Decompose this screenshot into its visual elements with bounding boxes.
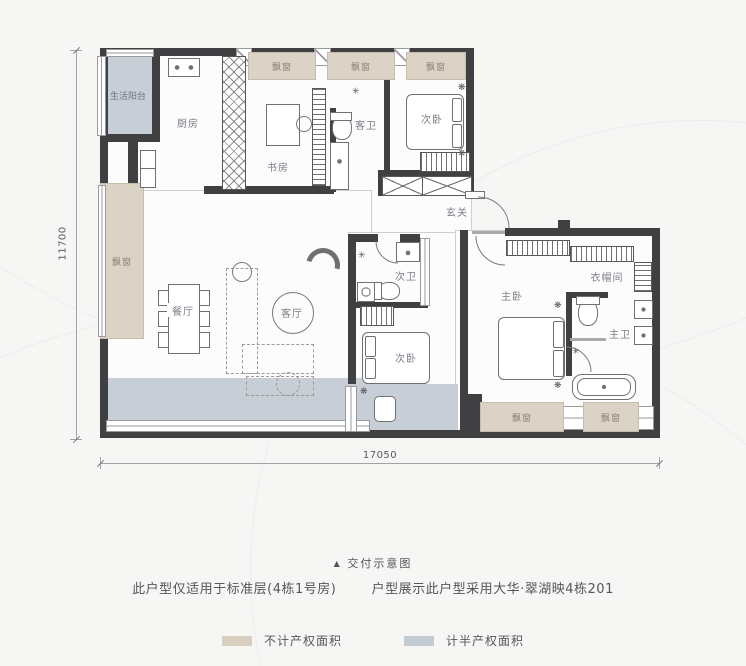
balcony-chair xyxy=(374,396,396,422)
pillow xyxy=(452,124,462,148)
wall xyxy=(246,186,334,194)
kitchen-label: 厨房 xyxy=(160,115,216,129)
study-chair xyxy=(296,116,312,132)
foyer-label: 玄关 xyxy=(441,204,473,218)
living-label: 客厅 xyxy=(276,305,308,319)
wall xyxy=(400,234,420,242)
master-bath-label: 主卫 xyxy=(604,326,636,340)
legend-non-property: 不计产权面积 xyxy=(222,632,342,649)
nightstand-icon: ❋ xyxy=(554,302,562,311)
dining-chair xyxy=(199,332,210,348)
master-wardrobe xyxy=(506,240,570,256)
bedroom-balcony-area xyxy=(356,384,458,430)
bathtub-inner xyxy=(577,378,631,396)
bay-window-label: 飘窗 xyxy=(351,60,371,73)
toilet-tank xyxy=(330,112,352,121)
toilet-tank xyxy=(576,296,600,305)
wall xyxy=(505,228,660,236)
usage-note-left: 此户型仅适用于标准层(4栋1号房) xyxy=(132,582,336,597)
dining-chair xyxy=(158,332,169,348)
bedroom-mid-label: 次卧 xyxy=(390,350,422,364)
kitchen-cabinet-column xyxy=(222,56,246,190)
bay-window-label: 飘窗 xyxy=(112,255,132,268)
vanity-sink xyxy=(634,300,653,319)
sofa-outline xyxy=(242,344,314,374)
bay-window-label: 飘窗 xyxy=(512,411,532,424)
bay-window: 飘窗 xyxy=(406,52,466,80)
delivery-note-row: ▲ 交付示意图 xyxy=(0,555,746,571)
wardrobe xyxy=(360,306,394,326)
shower-icon: ✳ xyxy=(352,88,360,97)
hanger-rail xyxy=(634,262,652,292)
floor-plan-page: 11700 17050 生活阳台 飘窗 飘窗 xyxy=(0,0,746,666)
pillow xyxy=(553,350,564,377)
bay-window: 飘窗 xyxy=(583,402,639,432)
service-balcony-label: 生活阳台 xyxy=(102,88,154,102)
toilet-tank xyxy=(374,282,382,300)
delivery-note-text: 交付示意图 xyxy=(347,557,412,570)
nightstand-icon: ❋ xyxy=(458,84,466,93)
usage-note-row: 此户型仅适用于标准层(4栋1号房) 户型展示此户型采用大华·翠湖映4栋201 xyxy=(0,578,746,597)
bay-window: 飘窗 xyxy=(327,52,395,80)
window xyxy=(98,185,106,337)
bay-window-label: 飘窗 xyxy=(601,411,621,424)
study-desk xyxy=(266,104,300,146)
pillow xyxy=(553,321,564,348)
shoe-cabinet xyxy=(382,176,424,196)
window xyxy=(562,406,585,430)
plant-icon: ❋ xyxy=(360,388,368,397)
wall xyxy=(348,234,356,384)
legend-swatch-tan xyxy=(222,636,252,646)
dining-chair xyxy=(199,311,210,327)
dining-label: 餐厅 xyxy=(167,303,199,317)
pillow xyxy=(452,98,462,122)
window xyxy=(345,386,357,432)
wall xyxy=(566,292,572,376)
vanity-sink xyxy=(634,326,653,345)
washing-machine xyxy=(357,282,375,302)
bay-window-label: 飘窗 xyxy=(272,60,292,73)
nightstand-icon: ❋ xyxy=(458,150,466,159)
pillow xyxy=(365,358,376,379)
cloakroom-label: 衣帽间 xyxy=(584,269,630,283)
stool-outline xyxy=(276,372,300,396)
legend-swatch-bluegray xyxy=(404,636,434,646)
partition xyxy=(570,338,606,341)
window xyxy=(637,406,654,430)
study-bookshelf xyxy=(312,88,326,186)
hanger-rail xyxy=(570,246,634,262)
dining-table xyxy=(168,284,200,354)
usage-note-right: 户型展示此户型采用大华·翠湖映4栋201 xyxy=(372,582,614,597)
legend-half-property: 计半产权面积 xyxy=(404,632,524,649)
bath-vanity xyxy=(330,142,349,190)
legend-non-property-label: 不计产权面积 xyxy=(264,632,342,649)
nightstand-icon: ❋ xyxy=(554,382,562,391)
legend: 不计产权面积 计半产权面积 xyxy=(0,632,746,649)
window xyxy=(106,49,154,57)
second-bath-label: 次卫 xyxy=(390,268,422,282)
guest-bath-label: 客卫 xyxy=(350,117,382,131)
balcony-parapet xyxy=(106,420,370,432)
dining-chair xyxy=(199,290,210,306)
entry-threshold xyxy=(472,231,505,234)
master-bedroom-label: 主卧 xyxy=(496,288,528,302)
bay-window-label: 飘窗 xyxy=(426,60,446,73)
wall xyxy=(558,220,570,230)
dimension-line-vertical xyxy=(76,50,77,440)
pendant-lamp xyxy=(232,262,252,282)
shower-icon: ✳ xyxy=(358,252,366,261)
height-dimension-label: 11700 xyxy=(58,226,69,260)
entry-door-leaf xyxy=(465,191,485,199)
kitchen-counter xyxy=(140,150,156,170)
kitchen-sink xyxy=(168,58,200,77)
bay-window: 飘窗 xyxy=(248,52,316,80)
pillow xyxy=(365,336,376,357)
dimension-line-horizontal xyxy=(100,463,660,464)
triangle-marker-icon: ▲ xyxy=(334,559,342,568)
legend-half-property-label: 计半产权面积 xyxy=(446,632,524,649)
study-label: 书房 xyxy=(260,159,296,173)
bay-window: 飘窗 xyxy=(480,402,564,432)
main-balcony-area xyxy=(106,378,368,422)
shower-icon: ✳ xyxy=(572,348,580,357)
bedroom-top-label: 次卧 xyxy=(416,111,448,125)
kitchen-counter xyxy=(140,168,156,188)
bay-window: 飘窗 xyxy=(100,183,144,339)
width-dimension-label: 17050 xyxy=(350,450,410,461)
bath-vanity xyxy=(396,242,420,262)
